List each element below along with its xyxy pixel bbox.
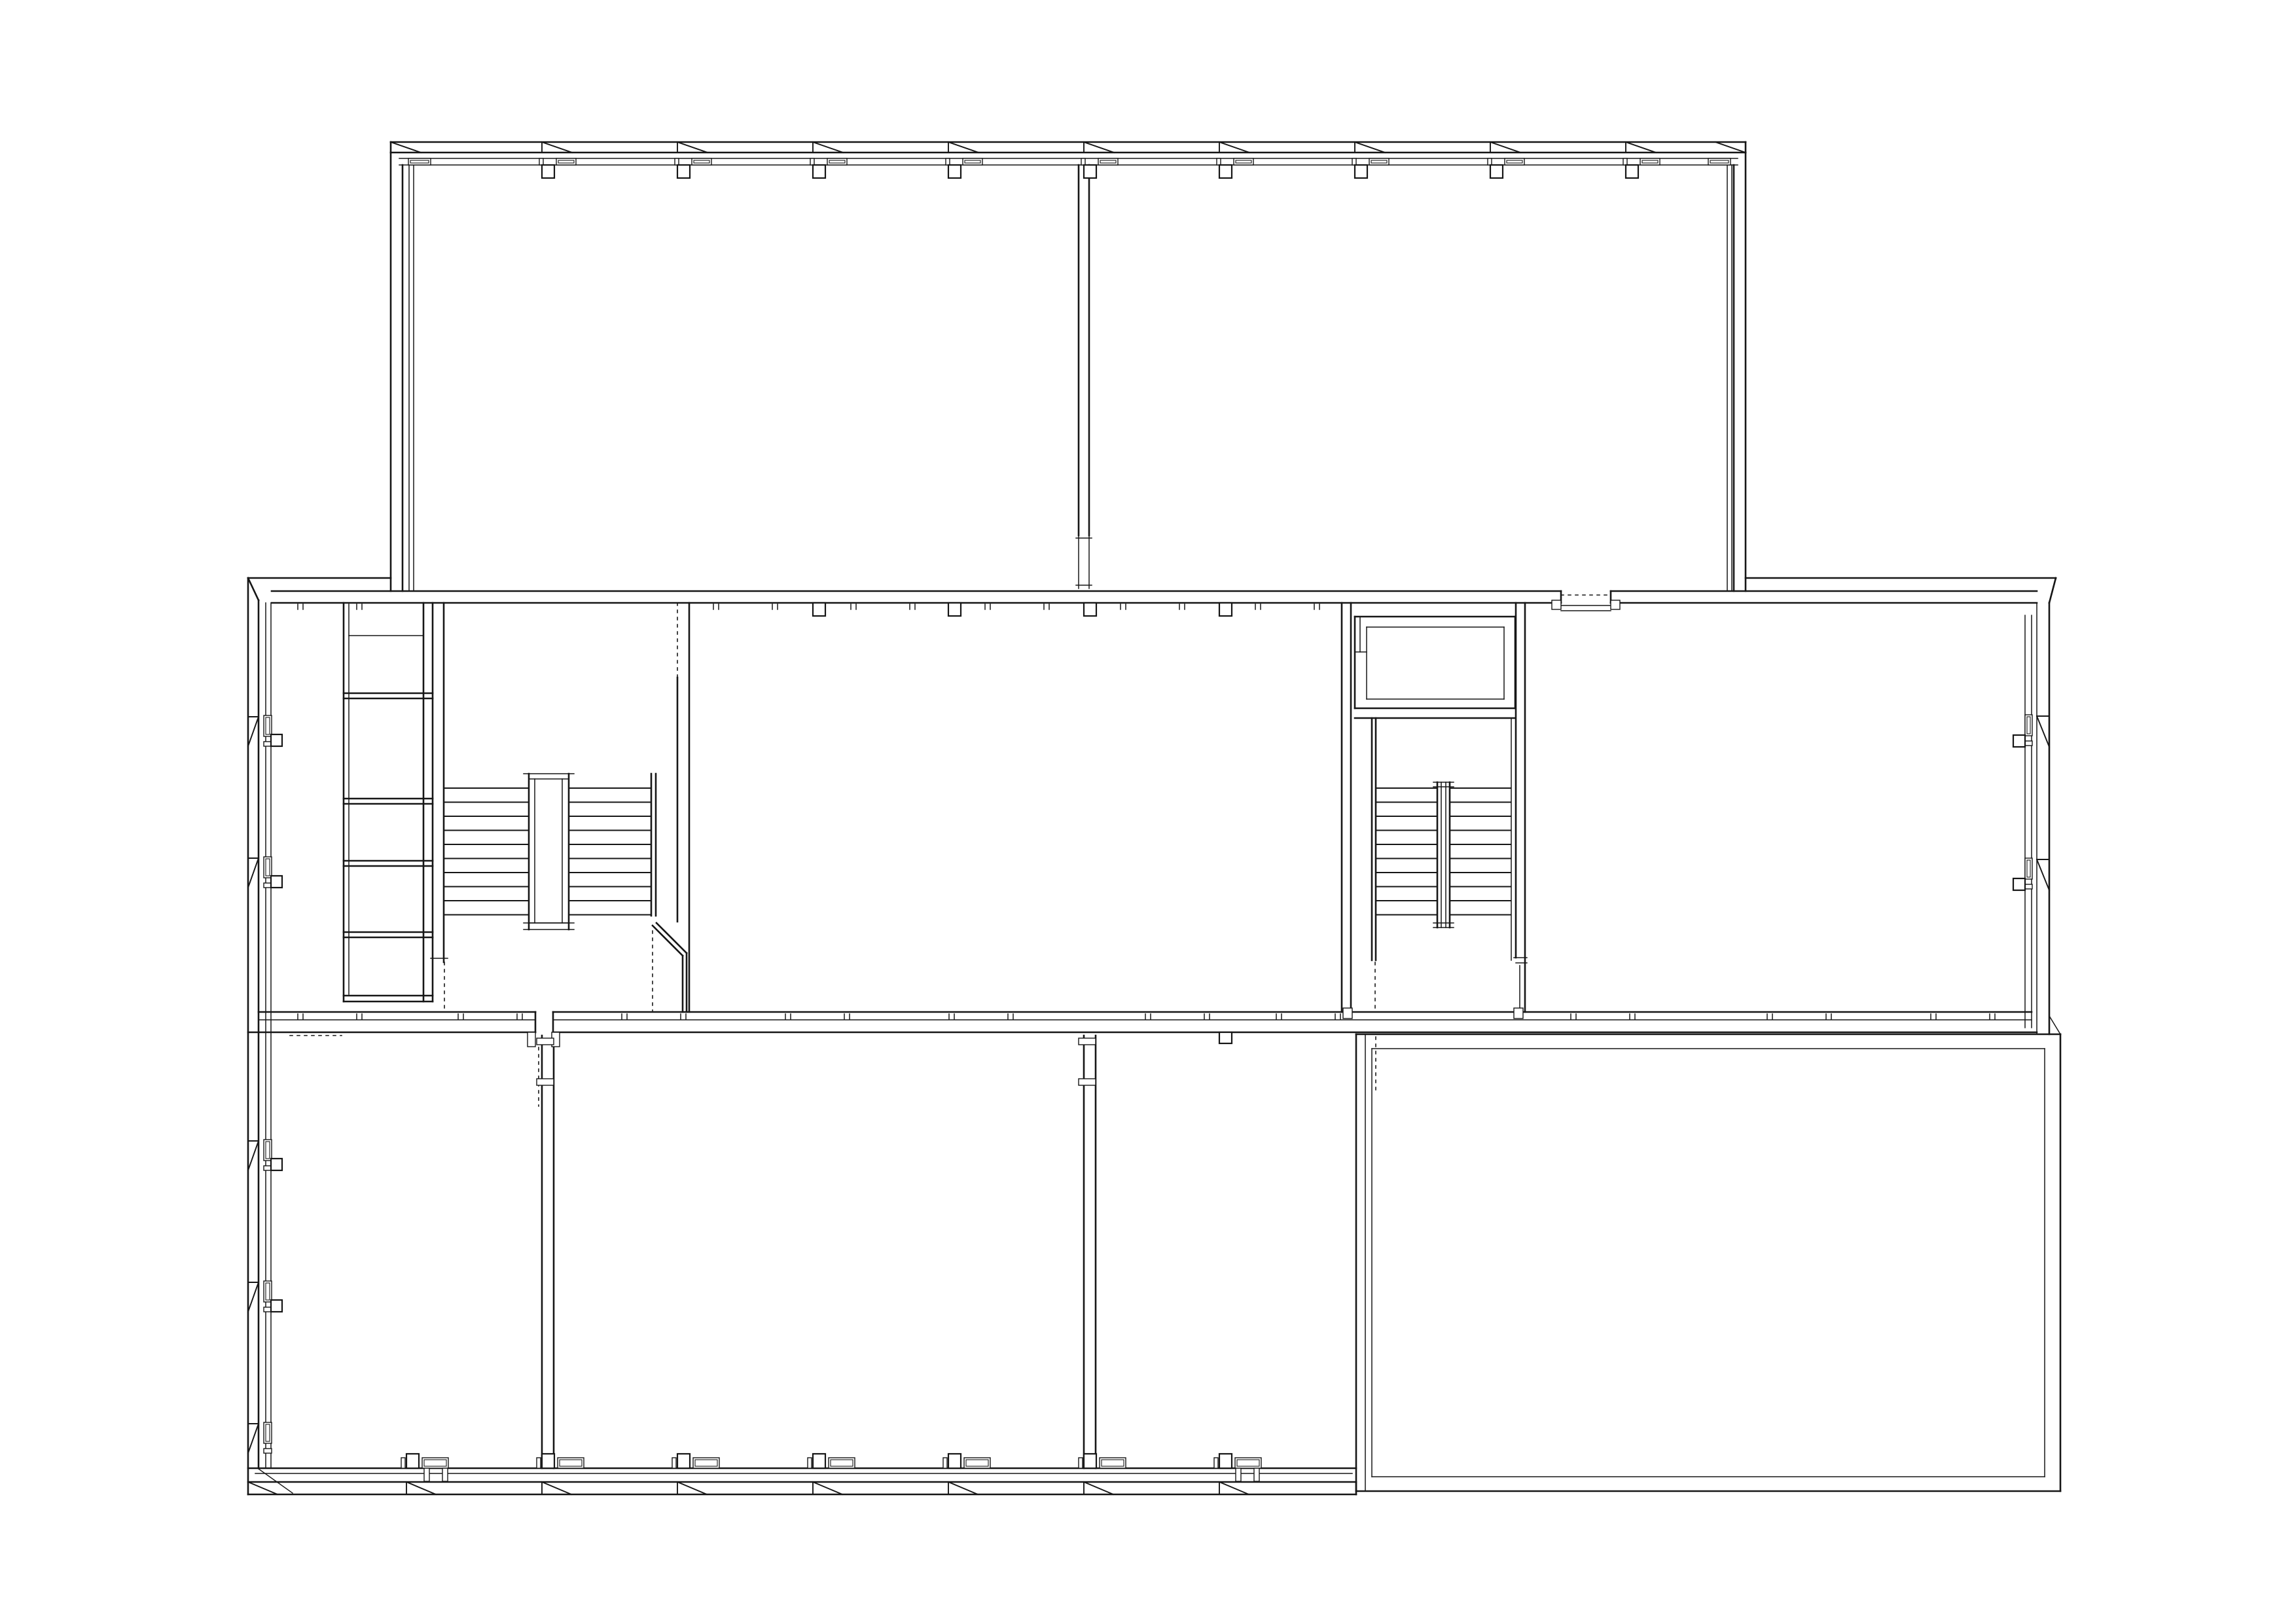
- window-post-inner: [1507, 160, 1522, 163]
- facade-bands: [248, 142, 2049, 1494]
- window-post-inner: [560, 1460, 582, 1466]
- window-post-inner: [1710, 160, 1729, 163]
- window-post: [943, 1458, 947, 1468]
- column: [1084, 603, 1096, 616]
- window-post-inner: [2027, 717, 2030, 734]
- dotted-openings: [290, 595, 1611, 1106]
- facade-diagonal: [391, 142, 421, 153]
- facade-diagonal: [677, 1482, 707, 1494]
- column: [1084, 165, 1096, 178]
- column: [1219, 1454, 1232, 1468]
- window-post: [1079, 1458, 1083, 1468]
- window-post: [401, 1458, 405, 1468]
- column: [813, 603, 825, 616]
- facade-diagonal: [248, 858, 259, 888]
- window-post: [675, 158, 679, 165]
- column: [813, 1454, 825, 1468]
- door-jamb: [1079, 1038, 1096, 1045]
- column: [2013, 878, 2025, 890]
- column: [1084, 1454, 1096, 1468]
- column: [1355, 165, 1367, 178]
- window-post-inner: [424, 1460, 446, 1466]
- window-post-inner: [410, 160, 429, 163]
- detail-line: [2049, 1016, 2060, 1034]
- left-stair-steps: [445, 788, 651, 915]
- facade-diagonal: [813, 1482, 842, 1494]
- column: [271, 1300, 282, 1312]
- facade-diagonal: [1084, 1482, 1113, 1494]
- window-post-inner: [266, 859, 270, 876]
- window-post-inner: [831, 1460, 853, 1466]
- wall-line: [656, 923, 687, 953]
- door-jamb: [442, 1468, 448, 1481]
- drawing-sheet: [0, 0, 2296, 1624]
- facade-diagonal: [1715, 142, 1746, 153]
- window-post-inner: [966, 1460, 988, 1466]
- window-post-inner: [1100, 160, 1116, 163]
- window-post-inner: [266, 1424, 270, 1441]
- window-post: [1217, 158, 1221, 165]
- window-post: [1352, 158, 1356, 165]
- column: [271, 876, 282, 888]
- floor-plan-drawing: [0, 0, 2296, 1624]
- window-post-inner: [266, 1142, 270, 1159]
- window-post-inner: [266, 717, 270, 734]
- facade-diagonal: [1355, 142, 1385, 153]
- door-jambs: [424, 600, 1620, 1481]
- facade-diagonal: [248, 1424, 259, 1453]
- door-jamb: [1079, 1079, 1096, 1085]
- detail-lines: [255, 158, 2060, 1493]
- window-post-inner: [695, 1460, 717, 1466]
- window-post: [2025, 741, 2032, 746]
- window-post: [1623, 158, 1627, 165]
- facade-diagonal: [1490, 142, 1520, 153]
- facade-diagonal: [948, 142, 978, 153]
- facade-diagonal: [1626, 142, 1656, 153]
- window-post: [810, 158, 814, 165]
- column: [1219, 165, 1232, 178]
- facade-diagonal: [248, 1141, 259, 1170]
- window-post-inner: [829, 160, 845, 163]
- column: [271, 1159, 282, 1170]
- window-post-inner: [266, 1283, 270, 1300]
- window-post: [946, 158, 950, 165]
- facade-diagonal: [406, 1482, 436, 1494]
- window-post: [264, 1449, 272, 1453]
- column: [1490, 165, 1503, 178]
- window-post: [2025, 884, 2032, 889]
- column: [542, 165, 554, 178]
- column: [1219, 1032, 1232, 1043]
- door-jamb: [1611, 600, 1620, 609]
- door-jamb: [537, 1038, 554, 1045]
- column: [1626, 165, 1638, 178]
- column: [677, 165, 690, 178]
- column: [542, 1454, 554, 1468]
- door-jamb: [528, 1032, 535, 1047]
- window-post-inner: [965, 160, 980, 163]
- column: [406, 1454, 419, 1468]
- column: [948, 1454, 961, 1468]
- wall-ticks: [298, 604, 1995, 1019]
- door-jamb: [537, 1079, 554, 1085]
- window-post-inner: [1642, 160, 1658, 163]
- window-post: [539, 158, 543, 165]
- facade-diagonal: [2037, 859, 2049, 890]
- facade-diagonal: [813, 142, 843, 153]
- door-jamb: [1552, 600, 1561, 609]
- window-post-inner: [1236, 160, 1251, 163]
- window-post-inner: [1371, 160, 1387, 163]
- facade-diagonal: [248, 1282, 259, 1312]
- window-post-inner: [1237, 1460, 1259, 1466]
- door-jamb: [1514, 1008, 1523, 1019]
- column: [1219, 603, 1232, 616]
- column: [948, 165, 961, 178]
- wall-line: [248, 578, 259, 600]
- window-post: [537, 1458, 541, 1468]
- structural-columns: [271, 165, 2025, 1468]
- wall-line: [653, 926, 683, 956]
- facade-diagonal: [677, 142, 708, 153]
- wall-line: [2049, 578, 2056, 603]
- facade-diagonal: [542, 1482, 571, 1494]
- window-post-inner: [694, 160, 709, 163]
- window-post: [1488, 158, 1492, 165]
- window-post: [1081, 158, 1085, 165]
- column: [677, 1454, 690, 1468]
- window-post: [1214, 1458, 1218, 1468]
- column: [813, 165, 825, 178]
- detail-line: [259, 1469, 293, 1493]
- door-jamb: [424, 1468, 429, 1481]
- window-post-inner: [2027, 860, 2030, 877]
- walls: [248, 142, 2060, 1494]
- window-post: [808, 1458, 812, 1468]
- facade-diagonal: [1219, 1482, 1249, 1494]
- door-jamb: [1236, 1468, 1241, 1481]
- facade-diagonal: [1084, 142, 1114, 153]
- door-jamb: [1343, 1008, 1352, 1019]
- facade-diagonal: [948, 1482, 978, 1494]
- window-post-inner: [1102, 1460, 1124, 1466]
- column: [2013, 735, 2025, 747]
- facade-diagonal: [248, 1482, 278, 1494]
- facade-diagonal: [2037, 716, 2049, 747]
- window-post: [672, 1458, 676, 1468]
- facade-diagonal: [248, 717, 259, 746]
- column: [948, 603, 961, 616]
- right-stair-steps: [1376, 788, 1511, 915]
- window-post-inner: [558, 160, 574, 163]
- facade-diagonal: [1219, 142, 1249, 153]
- facade-diagonal: [542, 142, 572, 153]
- column: [271, 734, 282, 746]
- door-jamb: [1254, 1468, 1259, 1481]
